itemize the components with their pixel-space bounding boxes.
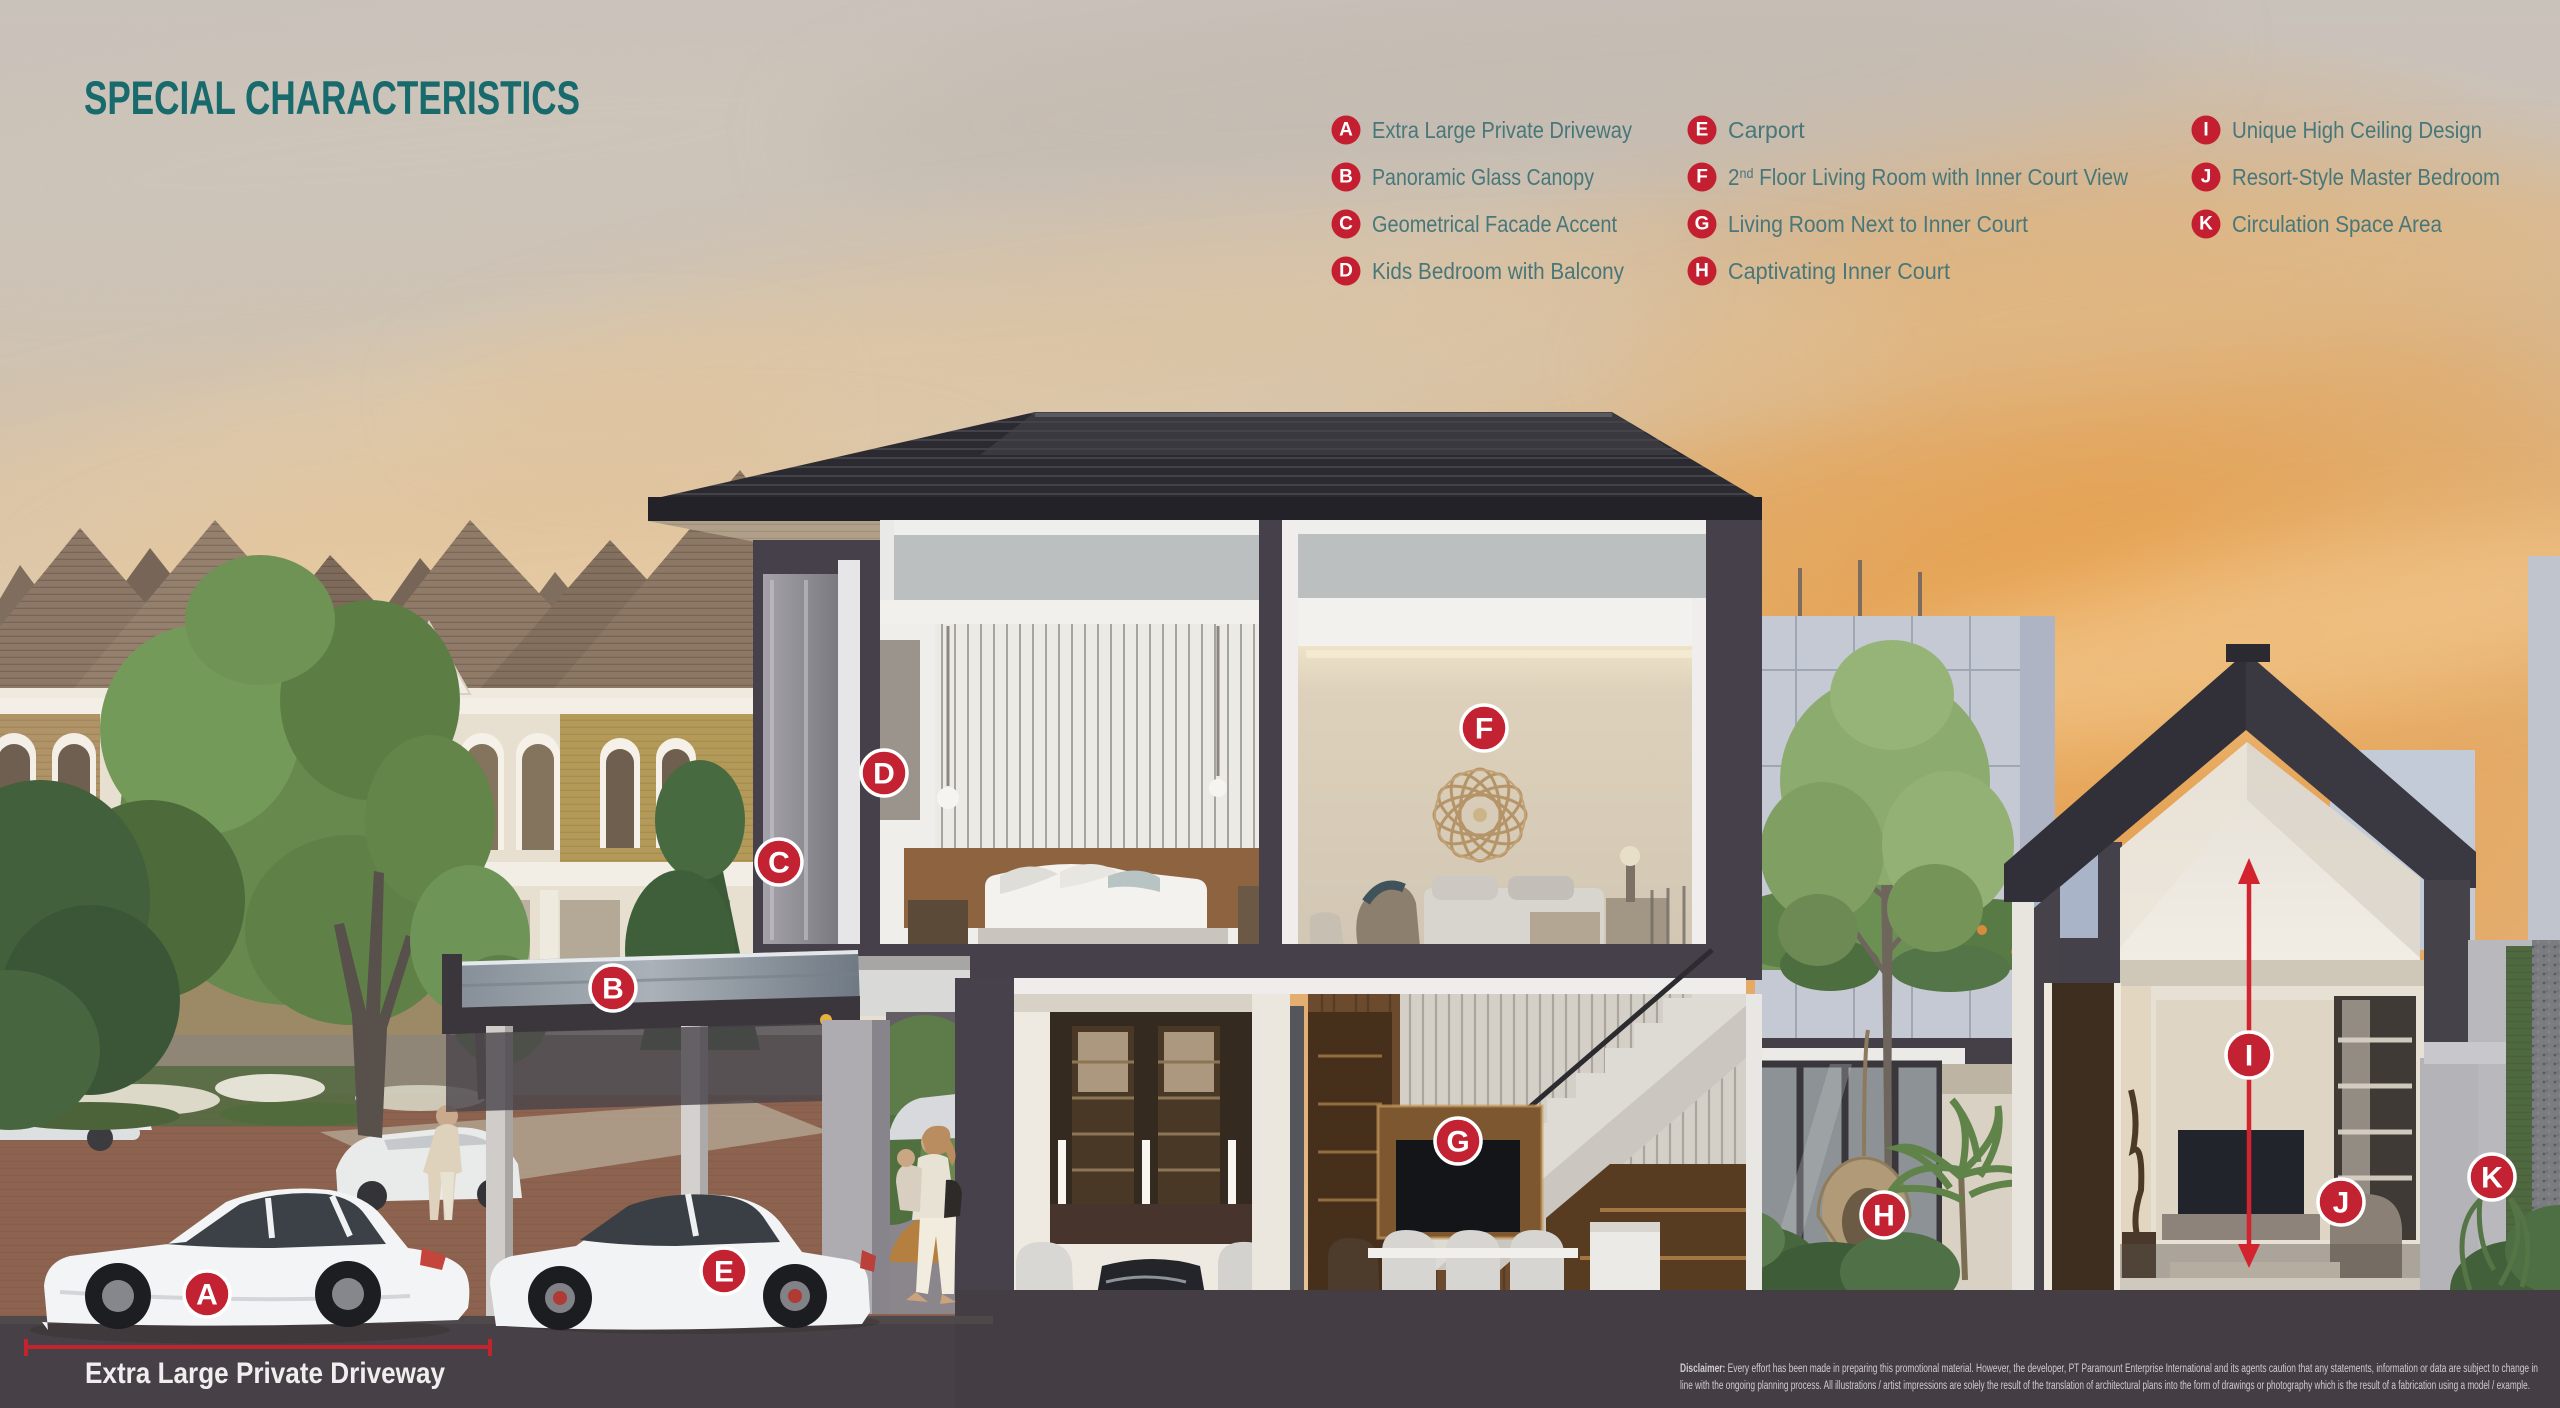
svg-text:G: G [1695, 214, 1710, 235]
svg-text:C: C [1339, 214, 1353, 235]
svg-text:I: I [2245, 1040, 2253, 1073]
svg-text:Extra Large Private Driveway: Extra Large Private Driveway [85, 1357, 445, 1390]
svg-text:A: A [196, 1279, 218, 1312]
svg-text:J: J [2333, 1187, 2350, 1220]
svg-text:A: A [1339, 120, 1353, 141]
svg-text:H: H [1695, 261, 1709, 282]
svg-text:Captivating Inner Court: Captivating Inner Court [1728, 258, 1951, 284]
svg-text:Kids Bedroom with Balcony: Kids Bedroom with Balcony [1372, 258, 1624, 284]
svg-text:Extra Large Private Driveway: Extra Large Private Driveway [1372, 117, 1632, 143]
svg-text:B: B [1339, 167, 1353, 188]
svg-text:E: E [1696, 120, 1709, 141]
svg-text:D: D [1339, 261, 1353, 282]
svg-text:I: I [2203, 120, 2208, 141]
svg-text:Panoramic Glass Canopy: Panoramic Glass Canopy [1372, 164, 1594, 190]
svg-text:D: D [873, 758, 895, 791]
svg-text:Resort-Style Master Bedroom: Resort-Style Master Bedroom [2232, 164, 2500, 190]
svg-text:2nd Floor Living Room with Inn: 2nd Floor Living Room with Inner Court V… [1728, 164, 2128, 190]
svg-text:Disclaimer: Every effort has b: Disclaimer: Every effort has been made i… [1680, 1363, 2538, 1375]
svg-text:F: F [1475, 713, 1493, 746]
svg-text:G: G [1446, 1126, 1469, 1159]
svg-text:K: K [2481, 1162, 2503, 1195]
svg-text:Circulation Space Area: Circulation Space Area [2232, 211, 2442, 237]
svg-text:Geometrical Facade Accent: Geometrical Facade Accent [1372, 211, 1618, 237]
svg-text:Carport: Carport [1728, 117, 1805, 143]
svg-text:C: C [768, 847, 790, 880]
svg-text:H: H [1873, 1200, 1895, 1233]
svg-text:line with the ongoing planning: line with the ongoing planning process. … [1680, 1380, 2530, 1392]
svg-text:E: E [714, 1256, 734, 1289]
svg-text:J: J [2201, 167, 2212, 188]
svg-text:B: B [602, 973, 624, 1006]
svg-text:K: K [2199, 214, 2213, 235]
svg-text:Living Room Next to Inner Cour: Living Room Next to Inner Court [1728, 211, 2029, 237]
svg-text:F: F [1696, 167, 1708, 188]
svg-text:SPECIAL CHARACTERISTICS: SPECIAL CHARACTERISTICS [84, 71, 580, 124]
svg-text:Unique High Ceiling Design: Unique High Ceiling Design [2232, 117, 2482, 143]
